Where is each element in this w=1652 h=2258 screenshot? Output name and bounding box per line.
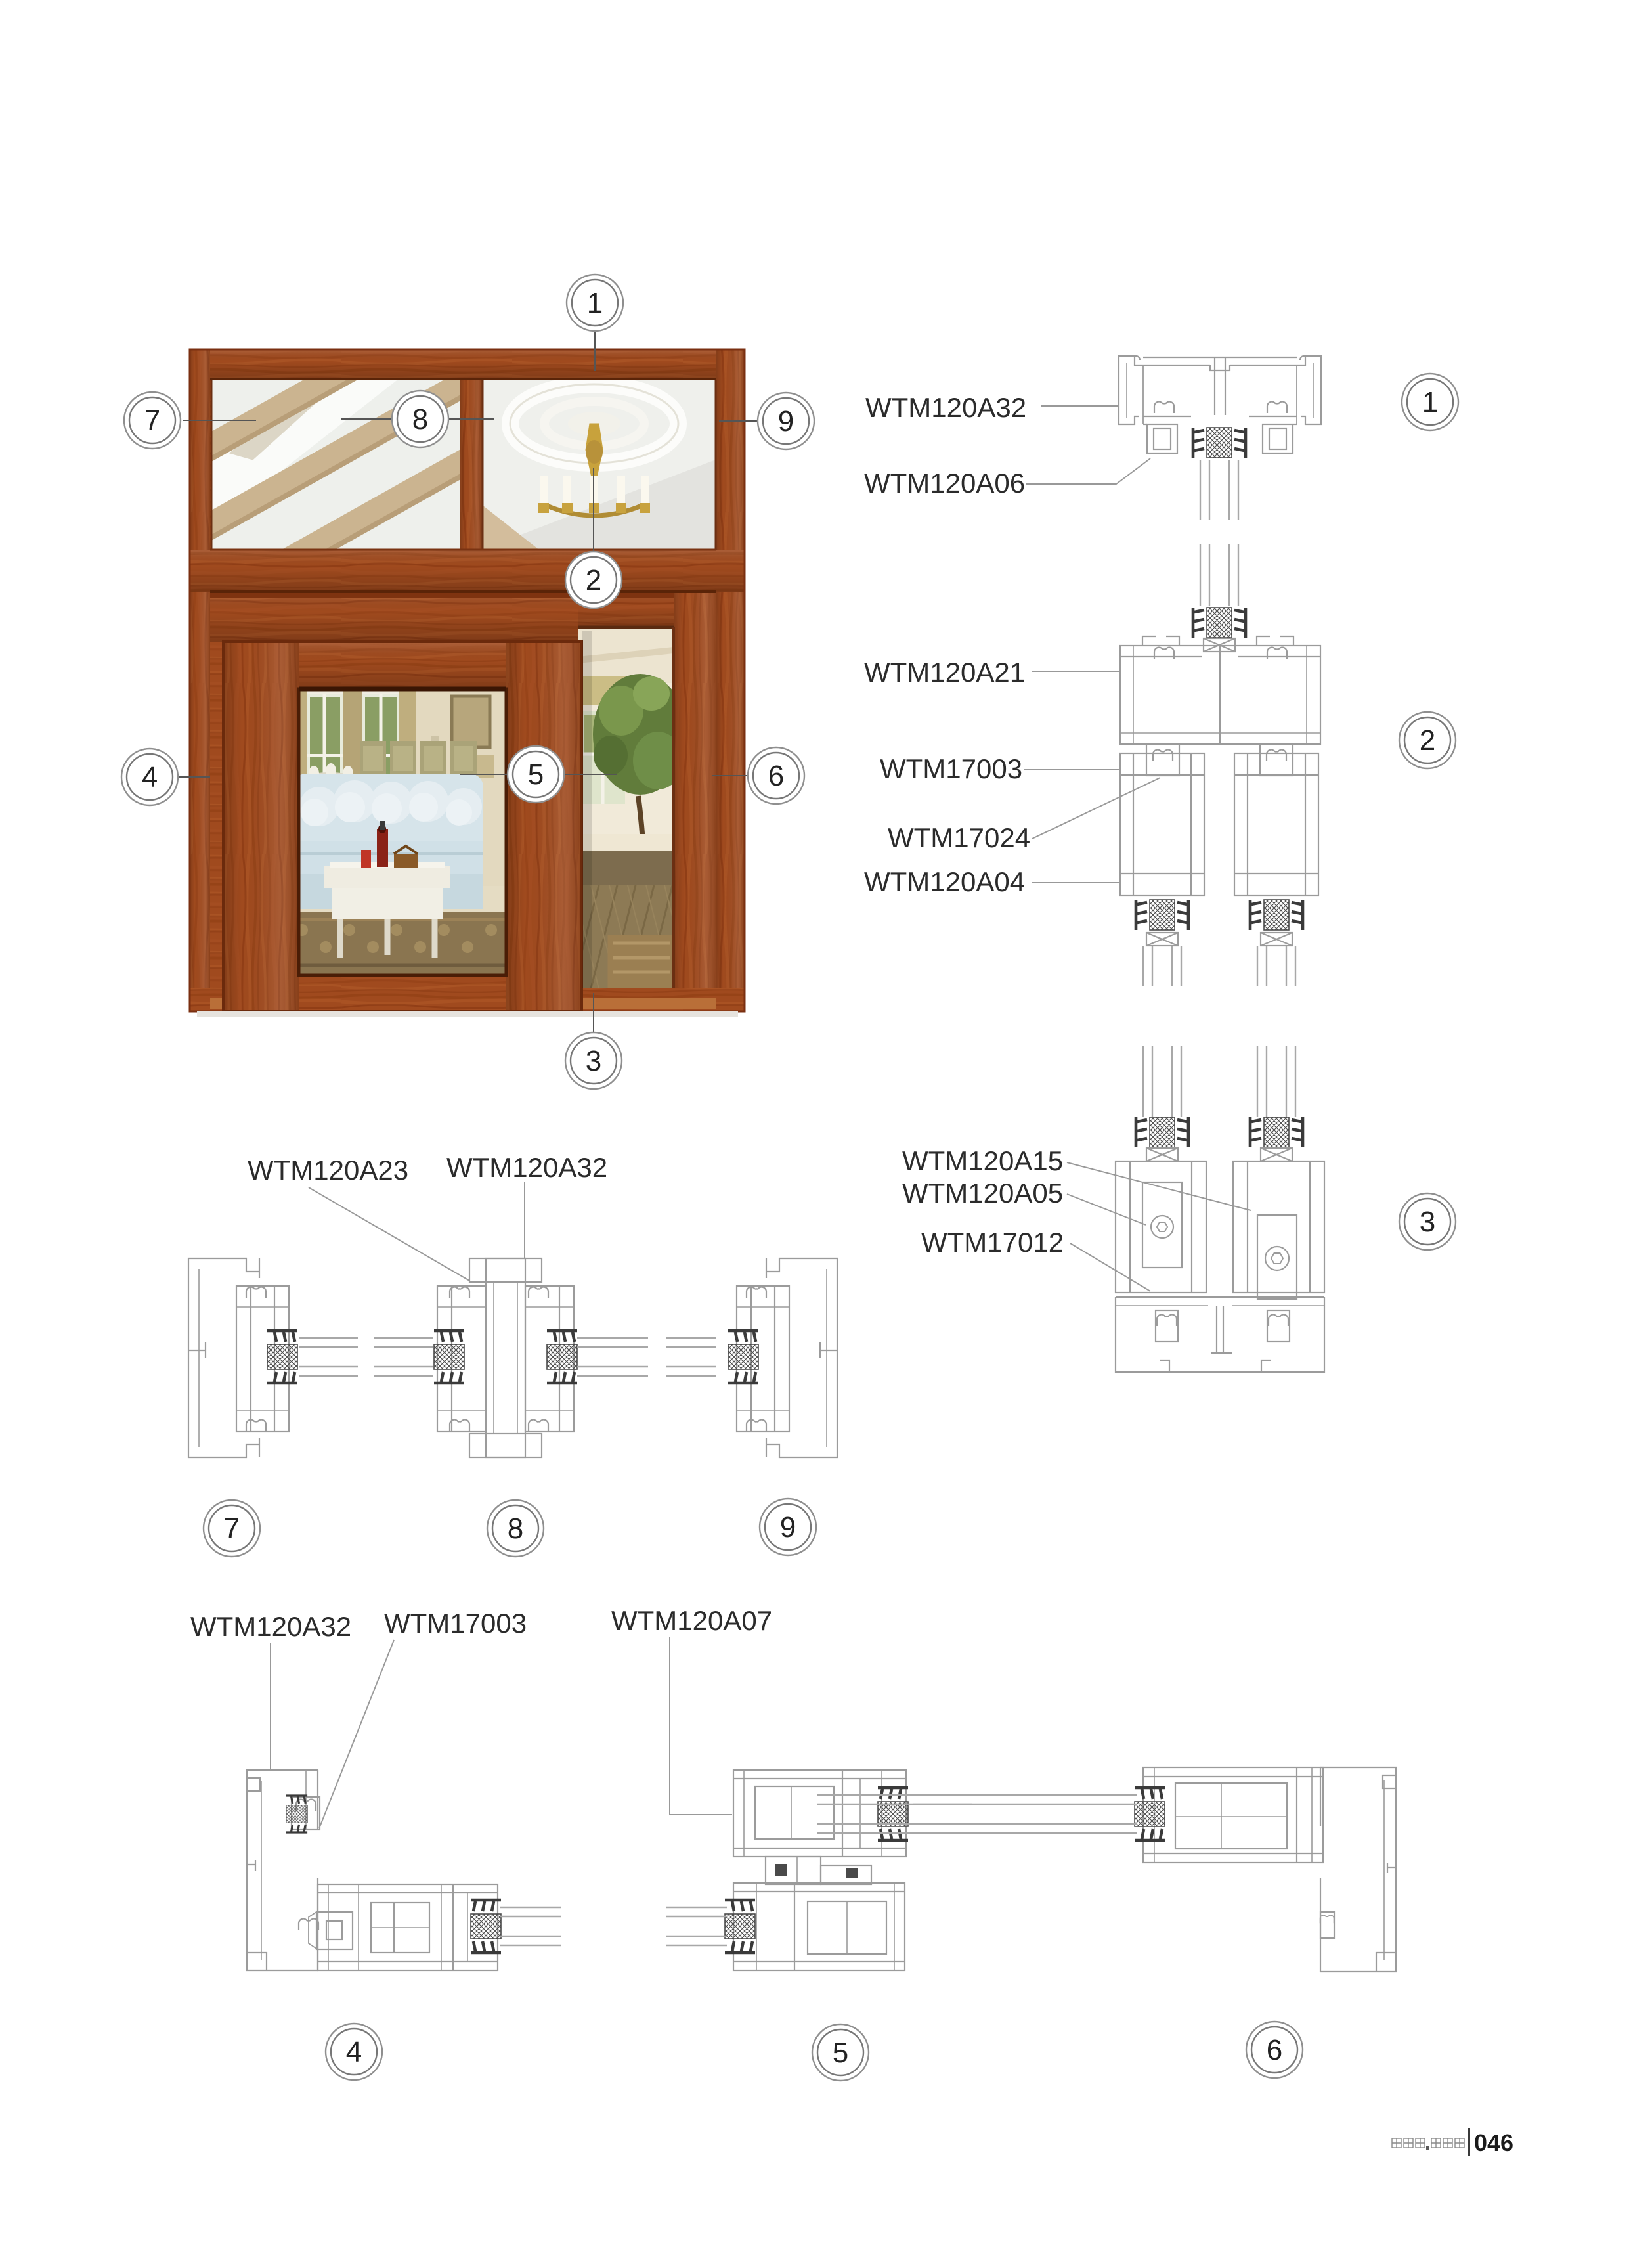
svg-text:WTM17003: WTM17003 xyxy=(384,1608,527,1639)
svg-text:WTM17003: WTM17003 xyxy=(880,753,1022,784)
svg-text:6: 6 xyxy=(1267,2034,1282,2066)
svg-text:8: 8 xyxy=(508,1513,523,1545)
svg-text:WTM120A07: WTM120A07 xyxy=(611,1605,772,1636)
svg-text:WTM120A21: WTM120A21 xyxy=(864,657,1025,688)
svg-text:WTM120A32: WTM120A32 xyxy=(190,1611,351,1642)
svg-text:WTM120A06: WTM120A06 xyxy=(864,468,1025,498)
svg-text:2: 2 xyxy=(586,564,601,596)
svg-text:9: 9 xyxy=(778,405,794,437)
svg-text:WTM17012: WTM17012 xyxy=(921,1227,1064,1258)
svg-text:WTM120A23: WTM120A23 xyxy=(248,1155,408,1185)
svg-text:8: 8 xyxy=(412,403,428,435)
svg-text:9: 9 xyxy=(780,1511,796,1543)
svg-text:4: 4 xyxy=(346,2036,362,2068)
svg-text:WTM120A05: WTM120A05 xyxy=(902,1178,1063,1208)
svg-text:1: 1 xyxy=(1422,386,1438,418)
svg-text:WTM120A32: WTM120A32 xyxy=(446,1152,607,1183)
svg-text:5: 5 xyxy=(833,2037,848,2069)
svg-text:WTM120A15: WTM120A15 xyxy=(902,1145,1063,1176)
svg-text:WTM17024: WTM17024 xyxy=(888,822,1030,853)
svg-text:WTM120A04: WTM120A04 xyxy=(864,866,1025,897)
svg-text:7: 7 xyxy=(144,405,160,437)
svg-text:046: 046 xyxy=(1474,2129,1513,2156)
svg-text:WTM120A32: WTM120A32 xyxy=(865,392,1026,423)
svg-text:1: 1 xyxy=(587,287,603,319)
svg-text:4: 4 xyxy=(142,761,158,793)
svg-text:7: 7 xyxy=(224,1513,240,1545)
svg-text:3: 3 xyxy=(586,1045,601,1077)
svg-text:5: 5 xyxy=(528,759,544,791)
svg-text:3: 3 xyxy=(1420,1206,1435,1238)
svg-text:6: 6 xyxy=(768,760,784,792)
svg-text:2: 2 xyxy=(1420,724,1435,757)
